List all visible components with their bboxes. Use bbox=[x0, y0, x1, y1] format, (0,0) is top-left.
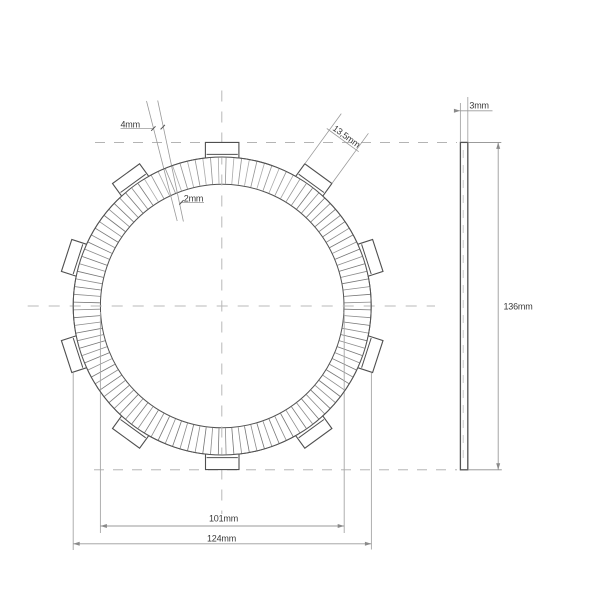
svg-text:101mm: 101mm bbox=[209, 513, 238, 523]
svg-text:2mm: 2mm bbox=[184, 193, 203, 203]
svg-text:136mm: 136mm bbox=[504, 301, 533, 311]
svg-text:3mm: 3mm bbox=[469, 101, 488, 111]
svg-text:4mm: 4mm bbox=[121, 120, 140, 130]
svg-text:13,5mm: 13,5mm bbox=[331, 123, 362, 149]
svg-text:124mm: 124mm bbox=[207, 534, 236, 544]
